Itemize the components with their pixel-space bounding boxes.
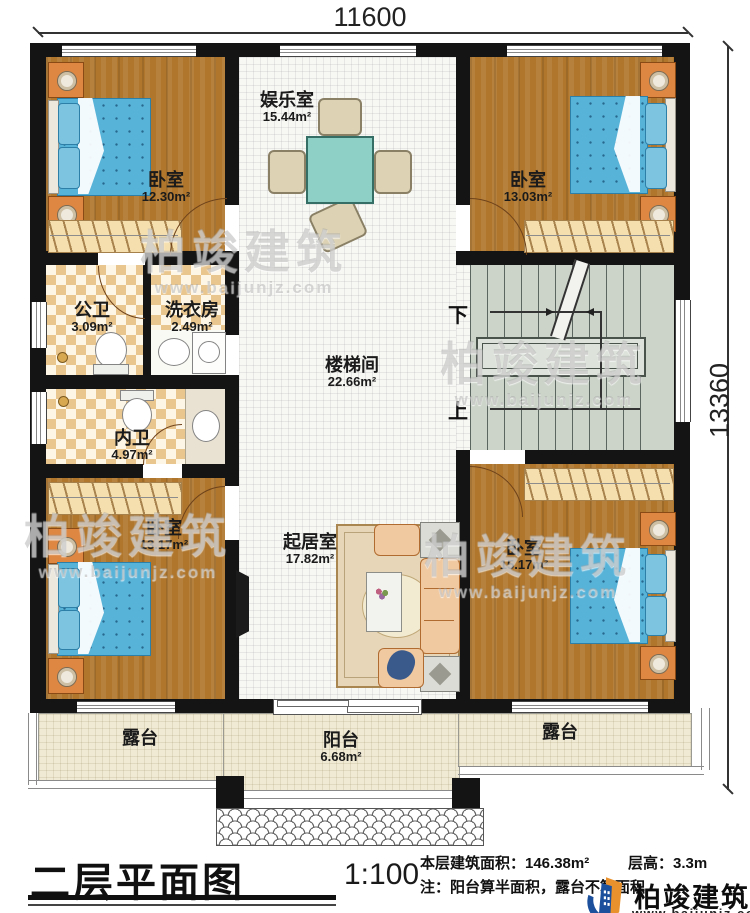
room-label-public-bath: 公卫 3.09m² [50, 300, 134, 335]
room-name: 内卫 [88, 428, 176, 448]
wardrobe-rod [526, 235, 670, 236]
wall [456, 450, 470, 464]
room-name: 卧室 [118, 518, 210, 538]
room-name: 洗衣房 [152, 300, 232, 320]
balcony-post [216, 776, 244, 810]
floor-drain-icon [58, 396, 69, 407]
room-area: 6.68m² [296, 750, 386, 765]
room-name: 楼梯间 [300, 355, 404, 375]
stair-down-label: 下 [448, 299, 468, 328]
pillow [645, 554, 667, 594]
window [512, 701, 648, 713]
wardrobe-rod [526, 483, 670, 484]
coffee-table [366, 572, 402, 632]
sliding-door-panel [277, 700, 349, 707]
toilet-icon [122, 398, 152, 432]
room-label-terrace-left: 露台 [100, 728, 180, 748]
room-label-entertainment: 娱乐室 15.44m² [244, 90, 330, 125]
window [280, 45, 416, 57]
lamp-icon [649, 71, 669, 91]
dimension-top: 11600 [290, 2, 450, 33]
lamp-icon [429, 529, 452, 552]
lamp-icon [429, 663, 452, 686]
room-area: 15.17m² [478, 558, 570, 573]
sofa [420, 558, 460, 654]
room-area: 12.30m² [120, 190, 212, 205]
armchair [374, 524, 420, 556]
dimension-right: 13360 [705, 331, 736, 471]
sliding-door-panel [347, 706, 419, 713]
room-label-bedroom-bl: 卧室 13.17m² [118, 518, 210, 553]
room-name: 卧室 [120, 170, 212, 190]
room-area: 17.82m² [258, 552, 362, 567]
arrow-icon [546, 308, 554, 316]
wall [30, 464, 143, 478]
lamp-icon [57, 71, 77, 91]
nightstand [640, 62, 676, 98]
balcony-post [452, 778, 480, 812]
pillow [645, 147, 667, 189]
stair-route [490, 408, 640, 410]
toilet-icon [95, 332, 127, 368]
window [62, 45, 196, 57]
room-label-bedroom-tr: 卧室 13.03m² [482, 170, 574, 205]
stair-landing-inner [482, 343, 638, 369]
pillow [58, 568, 80, 608]
stair-up-label: 上 [448, 395, 468, 424]
flowers-icon [374, 586, 390, 600]
window [507, 45, 662, 57]
nightstand [640, 512, 676, 546]
room-name: 娱乐室 [244, 90, 330, 110]
floor-area-label: 本层建筑面积：146.38m² [420, 852, 589, 873]
wall [30, 375, 239, 389]
lamp-icon [57, 667, 77, 687]
railing [701, 708, 710, 770]
railing [230, 790, 454, 799]
wardrobe-rod [50, 497, 178, 498]
room-label-bedroom-br: 卧室 15.17m² [478, 538, 570, 573]
wardrobe [524, 468, 674, 501]
wall [225, 464, 239, 486]
room-label-balcony: 阳台 6.68m² [296, 730, 386, 765]
room-area: 4.97m² [88, 448, 176, 463]
room-name: 阳台 [296, 730, 386, 750]
railing [28, 780, 226, 789]
window [31, 392, 47, 444]
nightstand [48, 62, 84, 98]
title-underline-2 [28, 904, 336, 906]
sink-icon [158, 338, 190, 366]
sofa-cushion-line [424, 620, 454, 621]
scale-label: 1:100 [344, 858, 419, 892]
nightstand [640, 646, 676, 680]
wall [456, 57, 470, 205]
tv-icon [236, 570, 249, 638]
room-area: 2.49m² [152, 320, 232, 335]
wall [225, 389, 239, 464]
roof-tiles [216, 808, 484, 846]
pillow [645, 596, 667, 636]
window [675, 300, 691, 422]
lamp-icon [57, 537, 77, 557]
pillow [645, 103, 667, 145]
room-label-bedroom-tl: 卧室 12.30m² [120, 170, 212, 205]
room-area: 22.66m² [300, 375, 404, 390]
room-name: 卧室 [482, 170, 574, 190]
pillow [58, 610, 80, 650]
lamp-icon [649, 654, 669, 674]
room-label-stair-hall: 楼梯间 22.66m² [300, 355, 404, 390]
stair-route [600, 311, 602, 410]
nightstand [48, 658, 84, 694]
room-name: 起居室 [258, 532, 362, 552]
washer-drum [198, 341, 220, 363]
chair [374, 150, 412, 194]
sofa-cushion-line [424, 588, 454, 589]
game-table [306, 136, 374, 204]
chair [268, 150, 306, 194]
room-area: 13.17m² [118, 538, 210, 553]
toilet-tank [93, 364, 129, 375]
pillow [58, 103, 80, 145]
room-area: 3.09m² [50, 320, 134, 335]
room-area: 15.44m² [244, 110, 330, 125]
floor-plan-sheet: 11600 13360 [0, 0, 750, 913]
window [77, 701, 175, 713]
room-label-terrace-right: 露台 [520, 722, 600, 742]
side-table [420, 656, 460, 692]
title-underline [28, 895, 336, 900]
room-label-laundry: 洗衣房 2.49m² [152, 300, 232, 335]
wardrobe [48, 220, 182, 253]
room-name: 露台 [520, 722, 600, 742]
room-label-inner-bath: 内卫 4.97m² [88, 428, 176, 463]
brand-url: www.baijunjz.com [632, 906, 750, 913]
window [31, 302, 47, 348]
arrow-icon [586, 308, 594, 316]
railing [458, 766, 704, 775]
room-name: 公卫 [50, 300, 134, 320]
room-label-living: 起居室 17.82m² [258, 532, 362, 567]
sink-icon [192, 410, 220, 442]
side-table [420, 522, 460, 558]
floor-drain-icon [57, 352, 68, 363]
room-name: 卧室 [478, 538, 570, 558]
wall [525, 450, 690, 464]
wardrobe [48, 482, 182, 515]
room-name: 露台 [100, 728, 180, 748]
wall [225, 57, 239, 205]
wardrobe-rod [50, 235, 178, 236]
wardrobe [524, 220, 674, 253]
room-area: 13.03m² [482, 190, 574, 205]
nightstand [48, 528, 84, 564]
brand-logo-icon [584, 874, 628, 913]
pillow [58, 147, 80, 189]
wall [30, 251, 98, 265]
floor-height-label: 层高：3.3m [628, 852, 738, 873]
railing [28, 713, 37, 785]
lamp-icon [649, 520, 669, 540]
